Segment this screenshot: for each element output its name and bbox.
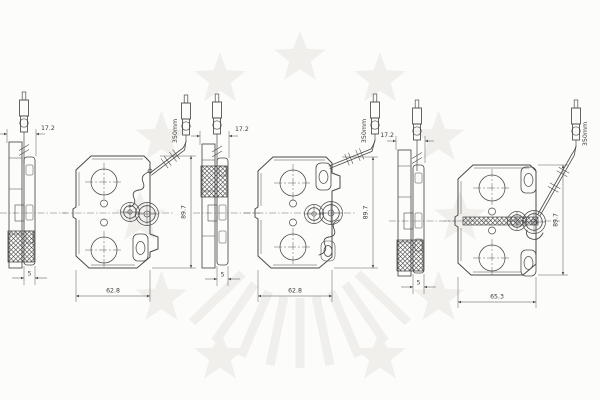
watermark-star xyxy=(413,271,464,320)
watermark-star xyxy=(274,31,325,80)
sensor-connector-pin xyxy=(182,95,191,141)
pad-width-label: 65.3 xyxy=(490,294,504,301)
front-view: 350mm89.762.8 xyxy=(244,94,380,302)
watermark-star xyxy=(114,191,165,240)
backing-thickness-label: 17.2 xyxy=(235,126,249,133)
pad-width-label: 62.8 xyxy=(106,288,120,295)
pad-height-label: 89.7 xyxy=(553,213,560,227)
sensor-wire xyxy=(329,140,375,168)
pad-width-label: 62.8 xyxy=(288,288,302,295)
crosshair-hole xyxy=(473,169,511,207)
crosshair-hole xyxy=(85,231,123,269)
pad-height-label: 89.7 xyxy=(181,205,188,219)
watermark-star xyxy=(434,191,485,240)
friction-material-hatch xyxy=(201,166,227,197)
pad-height-label: 89.7 xyxy=(363,206,370,220)
pad-drawing-left: 17.25350mm89.762.8 xyxy=(0,92,196,302)
watermark-star xyxy=(354,52,405,101)
backing-thickness-label: 17.2 xyxy=(41,125,55,132)
scanned-technical-drawing-page: 17.25350mm89.762.817.25350mm89.762.817.2… xyxy=(0,0,600,400)
friction-thickness-label: 5 xyxy=(221,273,225,279)
crosshair-hole xyxy=(473,239,511,277)
watermark-star xyxy=(136,271,187,320)
crosshair-hole xyxy=(274,228,312,266)
wire-length-label: 350mm xyxy=(582,122,589,146)
side-view: 17.25 xyxy=(191,94,260,286)
sensor-connector-pin xyxy=(371,94,380,140)
friction-material-hatch xyxy=(8,231,34,262)
pad-drawing-right: 17.25350mm89.765.3 xyxy=(380,100,589,308)
wire-length-label: 350mm xyxy=(172,119,179,143)
backing-thickness-label: 17.2 xyxy=(380,132,394,139)
pad-drawing-middle: 17.25350mm89.762.8 xyxy=(191,94,380,302)
front-view: 350mm89.765.3 xyxy=(444,100,589,308)
sensor-wire xyxy=(538,146,576,215)
crosshair-hole xyxy=(85,163,123,201)
sensor-connector-pin xyxy=(413,100,422,146)
side-view: 17.25 xyxy=(0,92,67,285)
mounting-tab xyxy=(521,250,536,276)
mounting-tab xyxy=(316,163,331,190)
sensor-connector-pin xyxy=(572,100,581,146)
sensor-connector-pin xyxy=(213,94,222,140)
friction-material-hatch xyxy=(397,240,423,271)
watermark-star xyxy=(194,52,245,101)
brake-pad-technical-drawing: 17.25350mm89.762.817.25350mm89.762.817.2… xyxy=(0,0,600,400)
crosshair-hole xyxy=(274,164,312,202)
mounting-tab xyxy=(521,167,536,193)
watermark-star xyxy=(136,111,187,160)
wire-length-label: 350mm xyxy=(361,119,368,143)
star-ring-watermark xyxy=(114,31,485,378)
front-view: 350mm89.762.8 xyxy=(62,95,196,302)
friction-thickness-label: 5 xyxy=(417,281,421,287)
sensor-connector-pin xyxy=(20,92,29,138)
friction-thickness-label: 5 xyxy=(28,272,32,278)
mounting-tab xyxy=(133,234,148,261)
